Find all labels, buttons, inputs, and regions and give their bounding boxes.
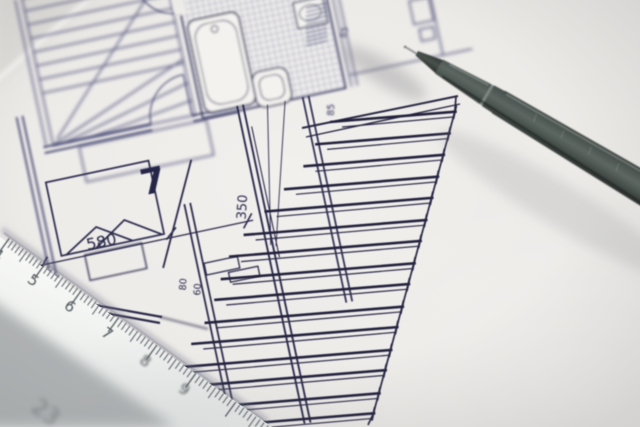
- vignette: [0, 0, 640, 427]
- scene-photo: 7 580 350 80 60 85 85 456789 23: [0, 0, 640, 427]
- photo-canvas: 7 580 350 80 60 85 85 456789 23: [0, 0, 640, 427]
